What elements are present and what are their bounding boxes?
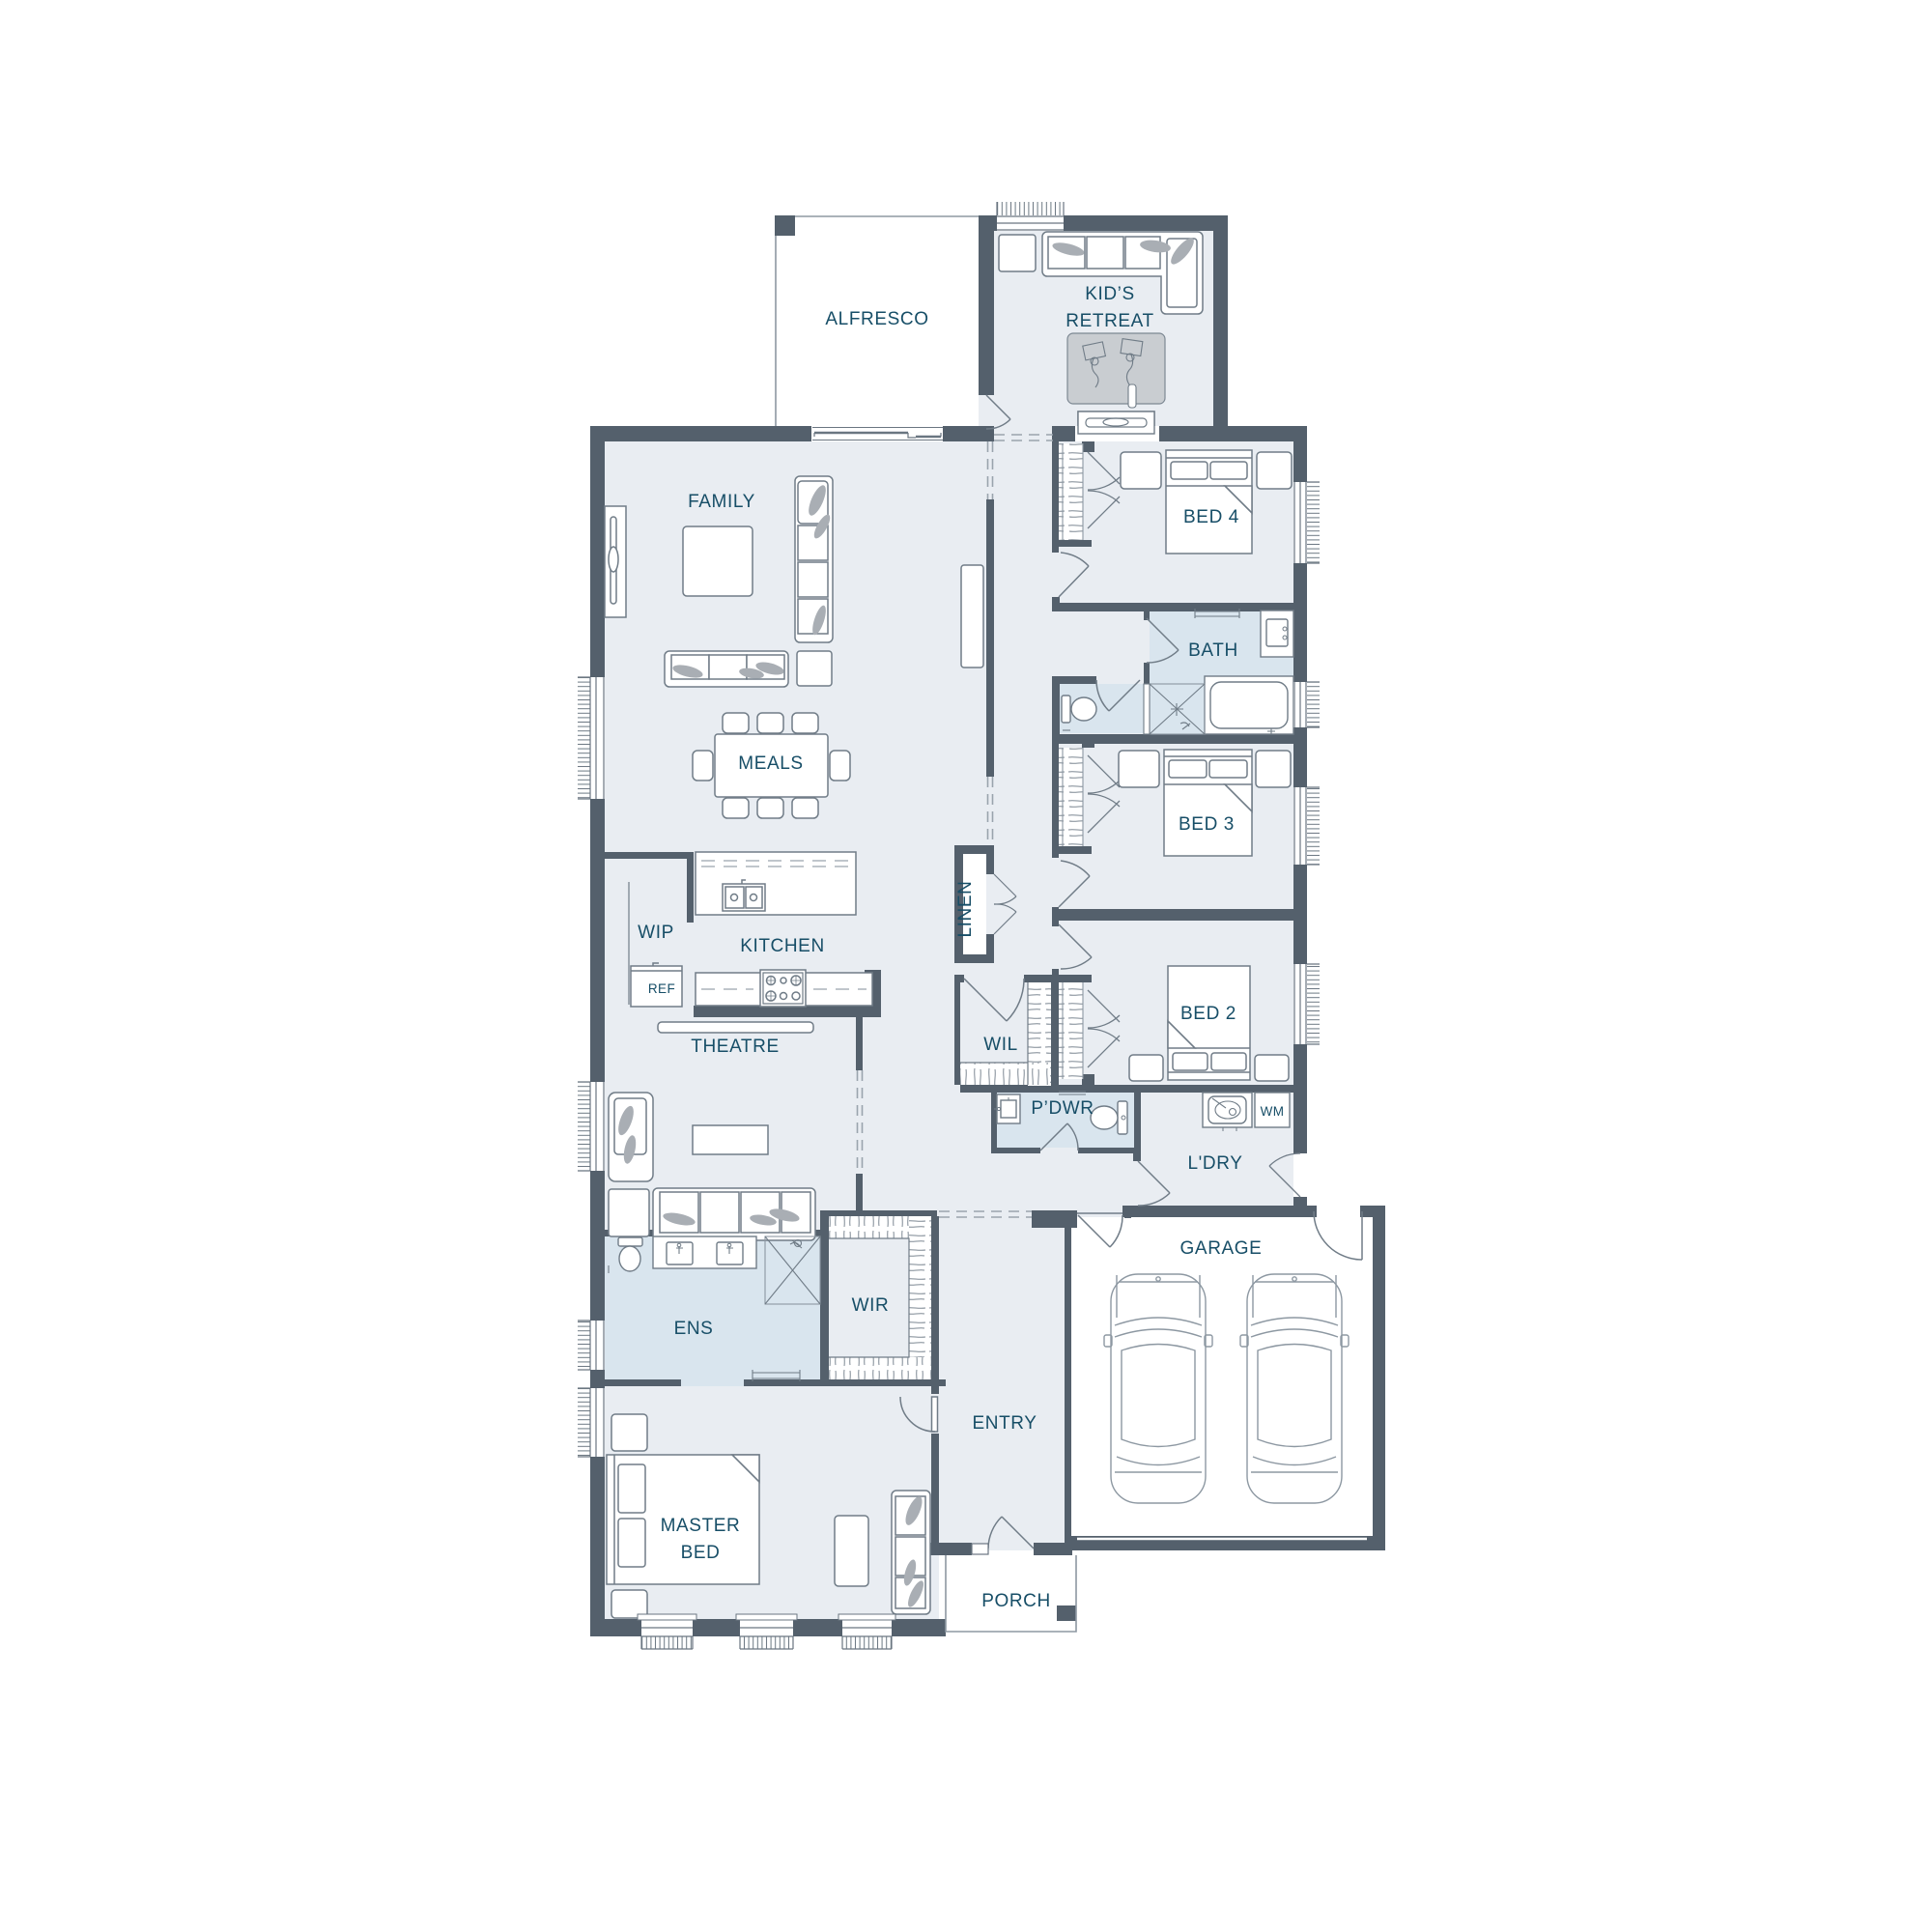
svg-text:MEALS: MEALS <box>738 753 803 774</box>
svg-text:KID’S: KID’S <box>1085 284 1135 304</box>
svg-text:LINEN: LINEN <box>955 881 976 938</box>
svg-text:ENTRY: ENTRY <box>972 1413 1037 1434</box>
svg-text:BED: BED <box>681 1543 721 1563</box>
svg-text:ENS: ENS <box>674 1319 714 1339</box>
svg-text:FAMILY: FAMILY <box>688 492 755 512</box>
svg-text:WM: WM <box>1261 1104 1285 1119</box>
svg-text:THEATRE: THEATRE <box>691 1037 779 1057</box>
svg-text:ALFRESCO: ALFRESCO <box>825 309 928 329</box>
svg-text:BATH: BATH <box>1188 640 1238 661</box>
svg-text:BED 4: BED 4 <box>1183 507 1239 527</box>
svg-text:GARAGE: GARAGE <box>1180 1238 1263 1259</box>
svg-text:P’DWR: P’DWR <box>1031 1098 1094 1119</box>
svg-text:L'DRY: L'DRY <box>1188 1153 1243 1174</box>
svg-text:WIR: WIR <box>852 1295 890 1316</box>
svg-text:WIL: WIL <box>983 1035 1018 1055</box>
svg-text:WIP: WIP <box>638 923 674 943</box>
svg-text:MASTER: MASTER <box>661 1516 741 1536</box>
svg-text:RETREAT: RETREAT <box>1065 311 1153 331</box>
svg-text:BED 2: BED 2 <box>1180 1004 1236 1024</box>
svg-text:REF: REF <box>648 981 675 996</box>
svg-text:BED 3: BED 3 <box>1179 814 1235 835</box>
svg-text:KITCHEN: KITCHEN <box>740 936 825 956</box>
svg-text:PORCH: PORCH <box>981 1591 1051 1611</box>
